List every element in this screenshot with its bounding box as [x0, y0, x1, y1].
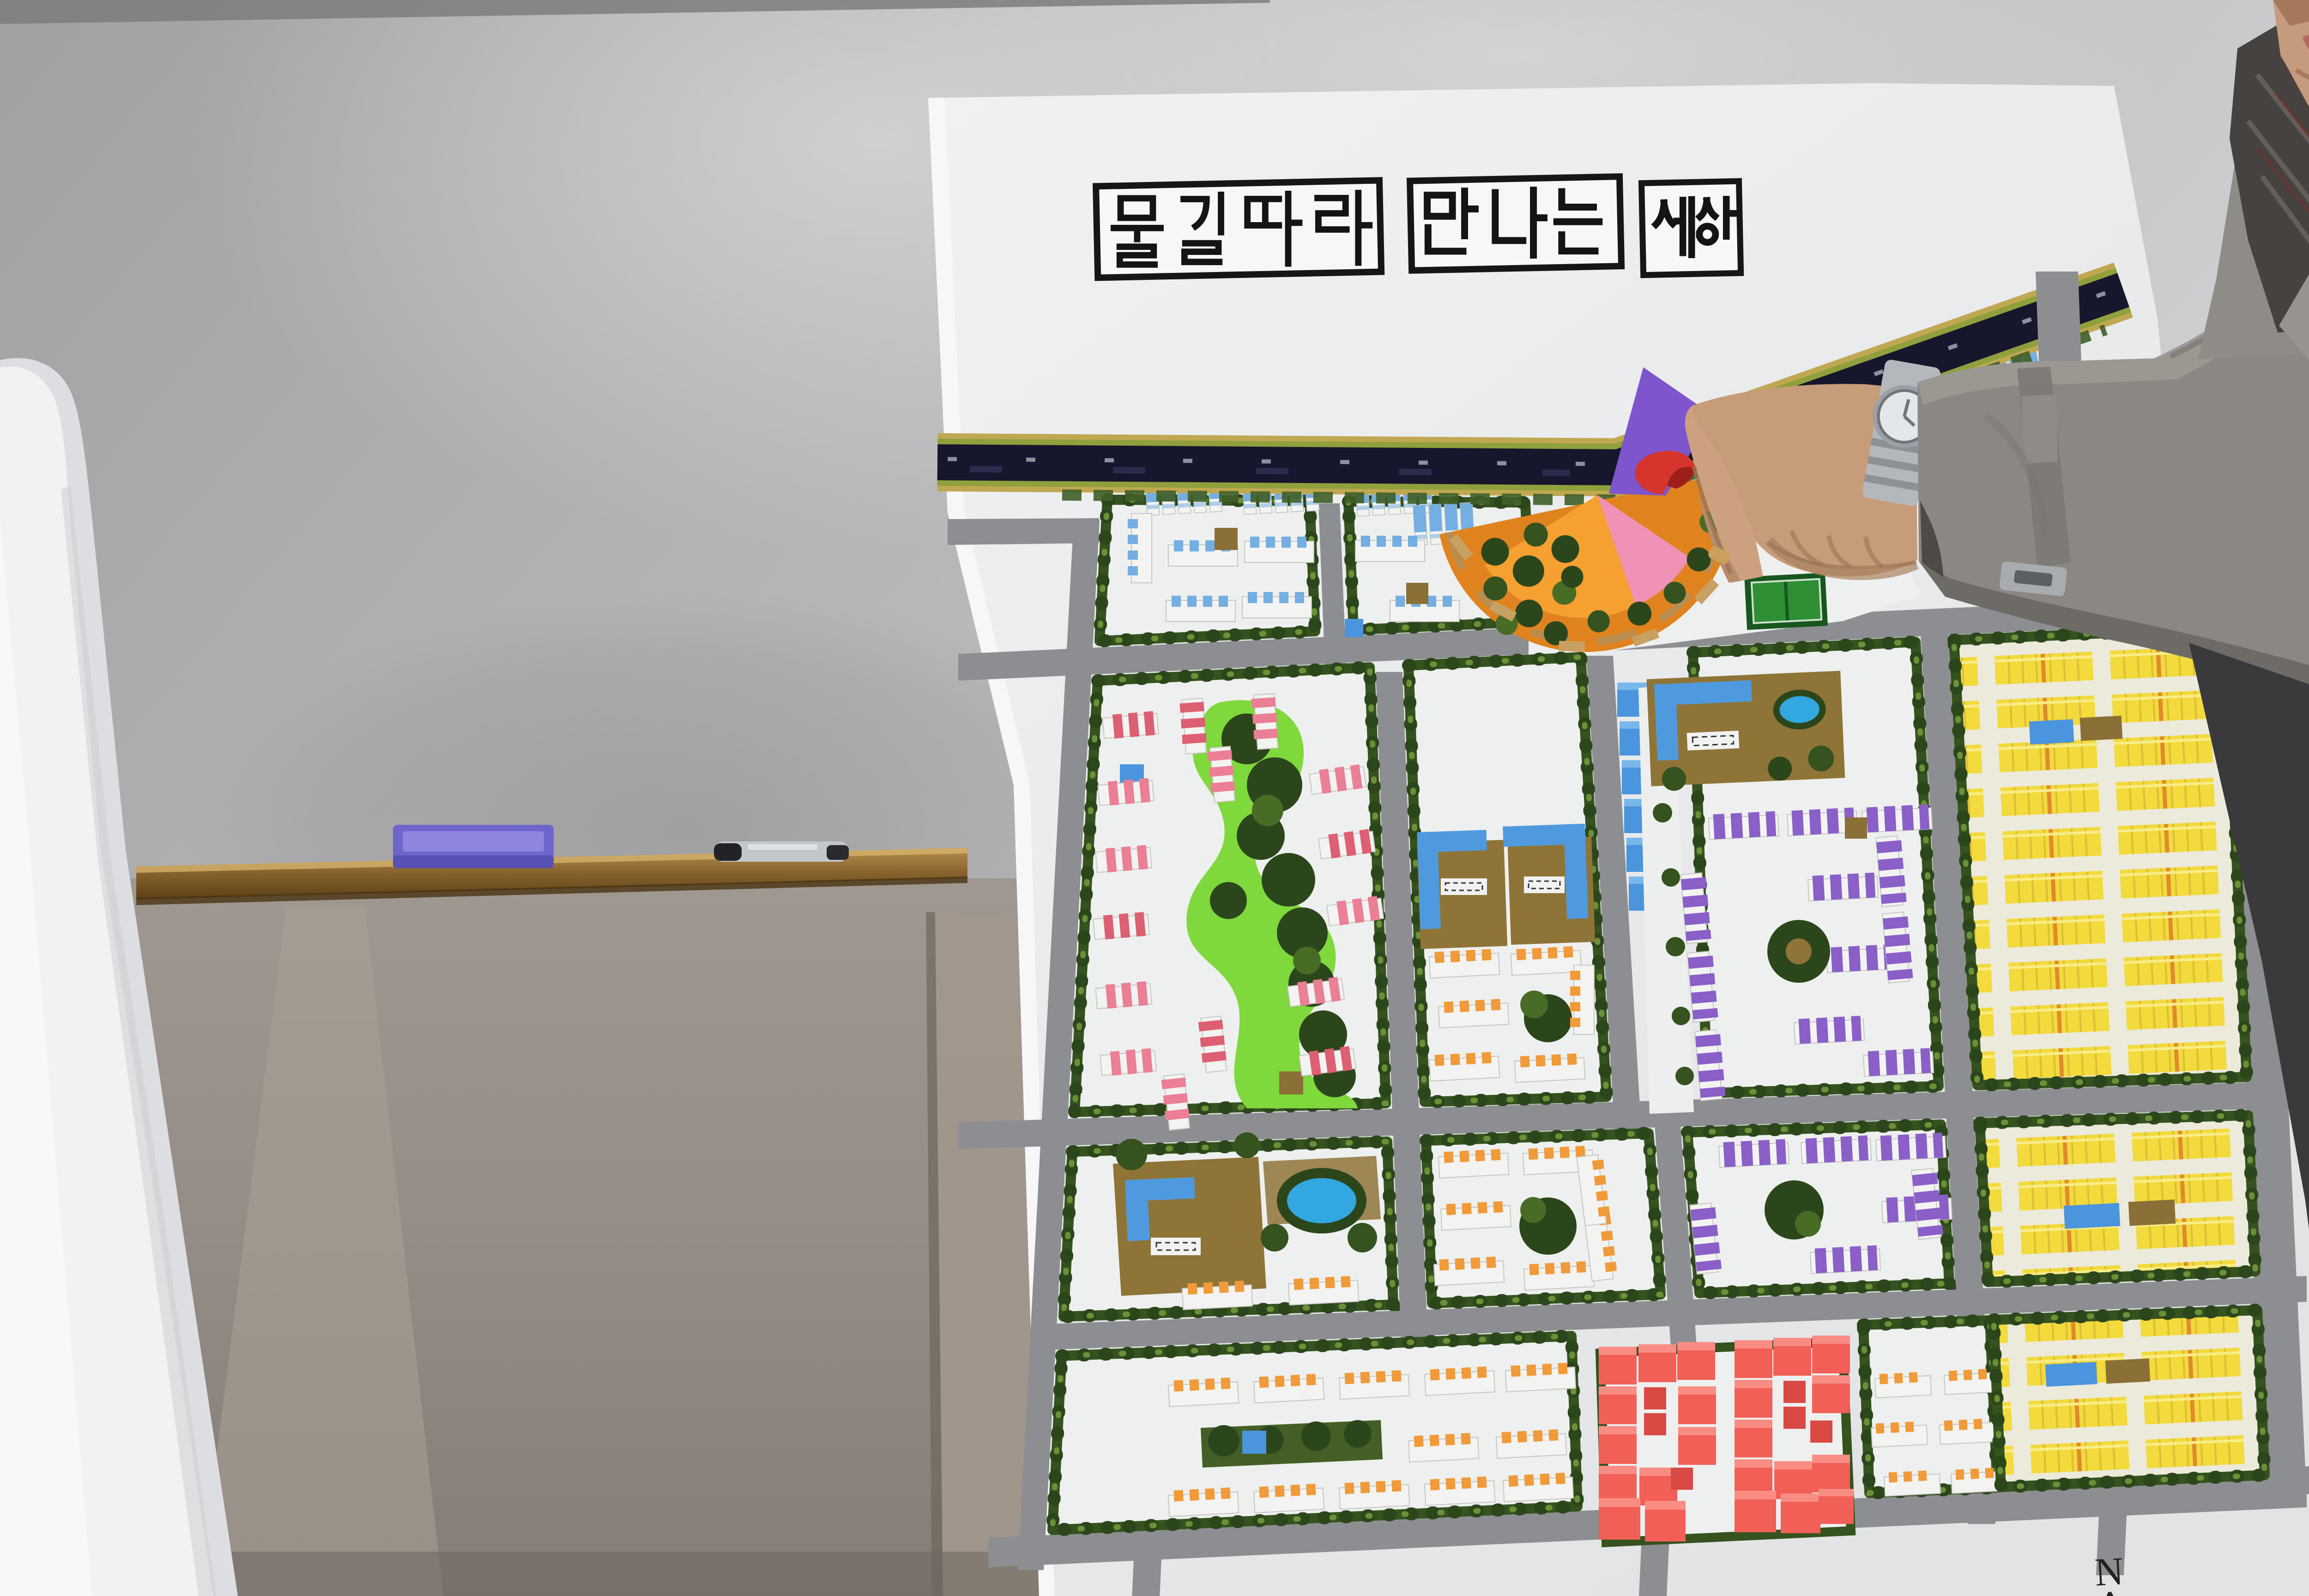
svg-text:N: N — [2094, 1548, 2125, 1594]
